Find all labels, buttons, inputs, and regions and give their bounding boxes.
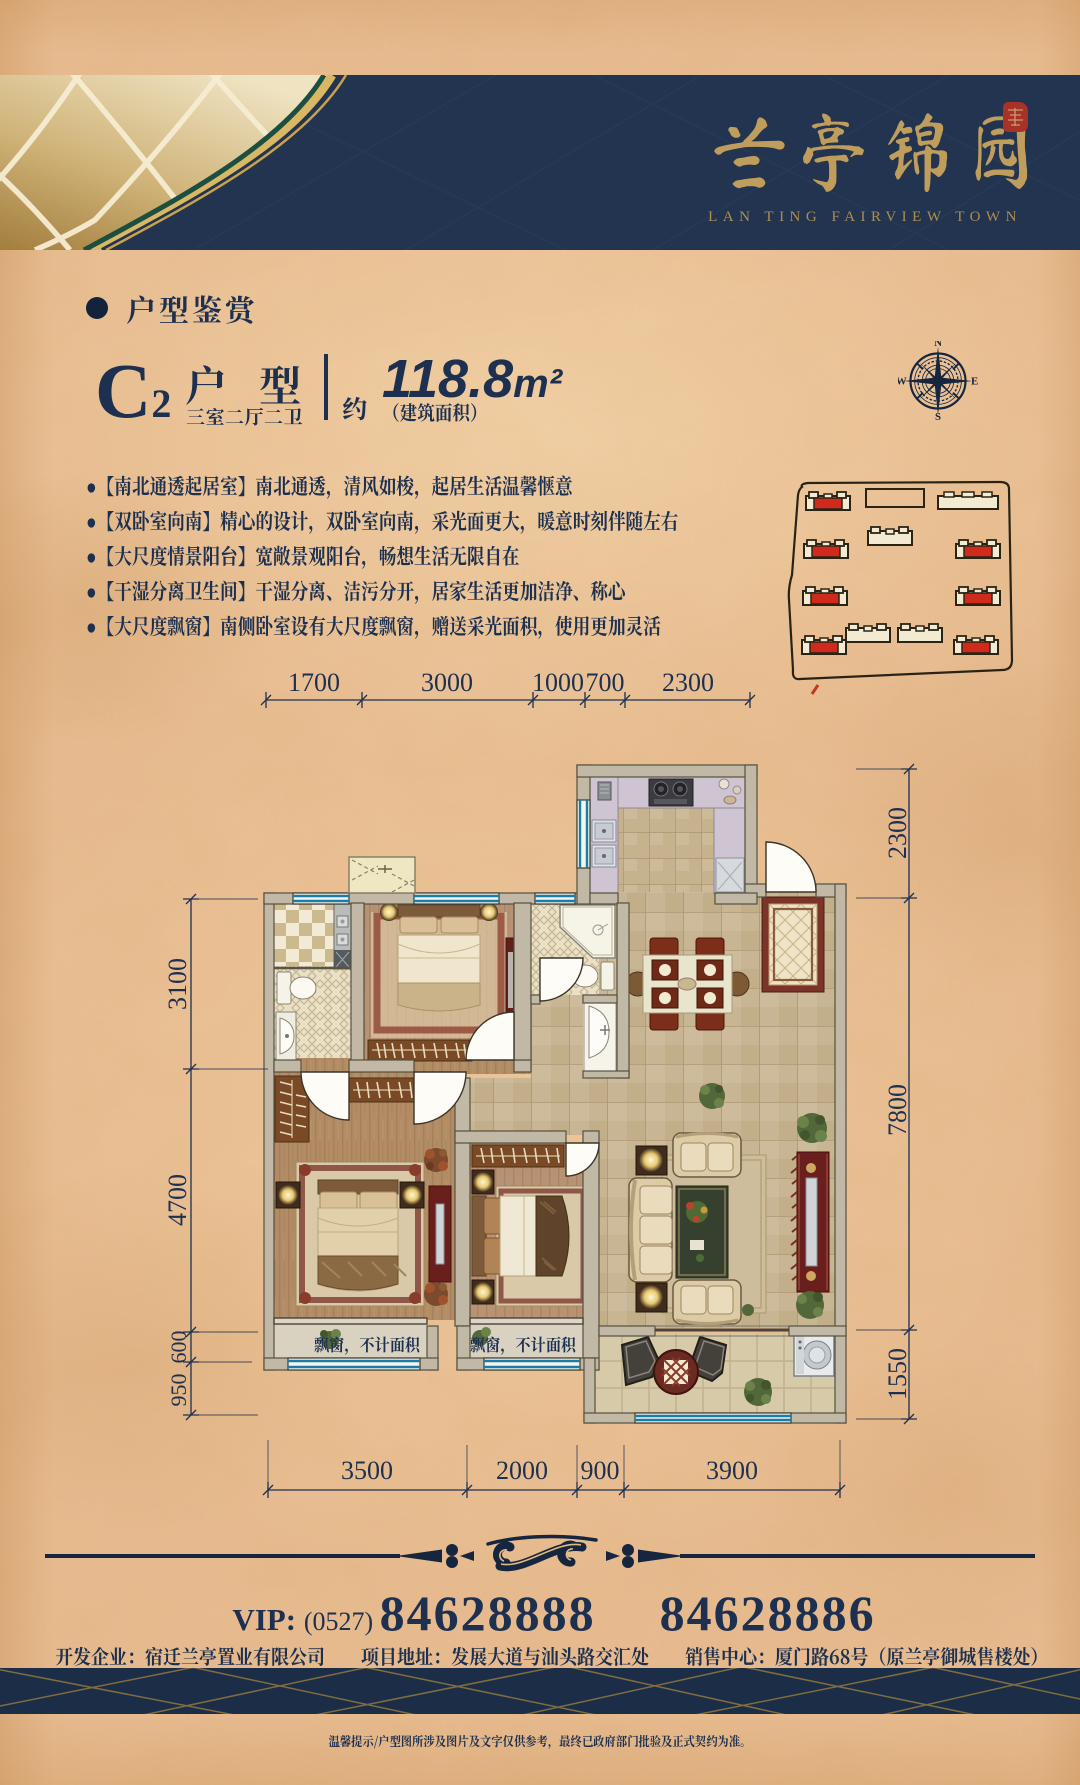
svg-text:2300: 2300 <box>662 668 714 697</box>
svg-text:950: 950 <box>166 1374 191 1407</box>
svg-text:3100: 3100 <box>163 958 192 1010</box>
svg-text:1700: 1700 <box>288 668 340 697</box>
svg-text:N: N <box>934 341 942 349</box>
svg-text:3900: 3900 <box>706 1456 758 1485</box>
svg-text:3500: 3500 <box>341 1456 393 1485</box>
svg-text:E: E <box>971 375 978 387</box>
svg-text:1550: 1550 <box>883 1348 912 1400</box>
svg-text:7800: 7800 <box>883 1084 912 1136</box>
svg-text:1000: 1000 <box>532 668 584 697</box>
svg-text:W: W <box>898 375 907 387</box>
svg-text:飘窗，不计面积: 飘窗，不计面积 <box>314 1331 420 1356</box>
svg-text:4700: 4700 <box>163 1174 192 1226</box>
svg-text:飘窗，不计面积: 飘窗，不计面积 <box>470 1331 576 1356</box>
svg-text:700: 700 <box>586 668 625 697</box>
svg-text:3000: 3000 <box>421 668 473 697</box>
svg-text:S: S <box>935 411 941 421</box>
svg-text:2000: 2000 <box>496 1456 548 1485</box>
svg-text:2300: 2300 <box>883 807 912 859</box>
svg-text:600: 600 <box>166 1331 191 1364</box>
svg-text:900: 900 <box>581 1456 620 1485</box>
